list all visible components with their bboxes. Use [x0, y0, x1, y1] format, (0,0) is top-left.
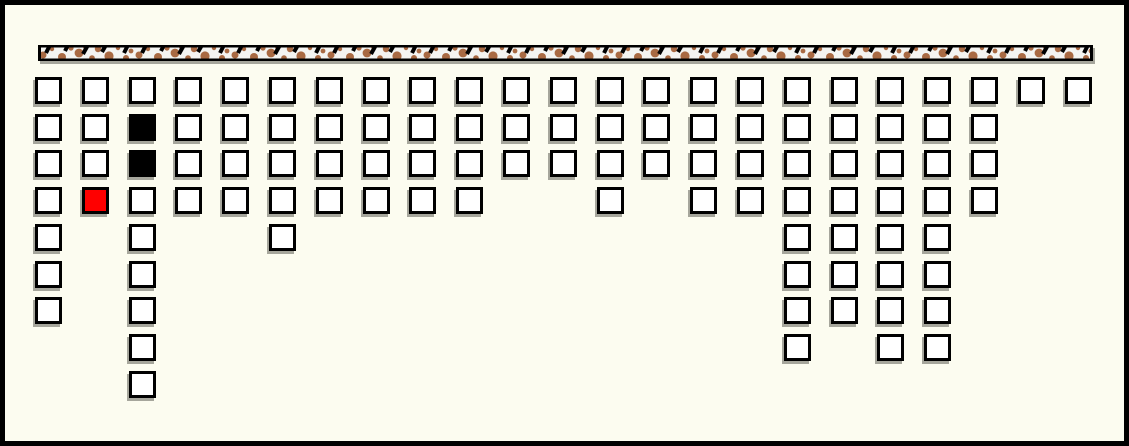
- grid-cell[interactable]: [971, 77, 998, 104]
- black-cell[interactable]: [129, 114, 156, 141]
- grid-cell[interactable]: [129, 334, 156, 361]
- grid-cell[interactable]: [784, 224, 811, 251]
- grid-cell[interactable]: [363, 150, 390, 177]
- grid-cell[interactable]: [737, 114, 764, 141]
- grid-cell[interactable]: [784, 334, 811, 361]
- grid-cell[interactable]: [129, 187, 156, 214]
- grid-cell[interactable]: [550, 77, 577, 104]
- grid-cell[interactable]: [222, 150, 249, 177]
- grid-cell[interactable]: [737, 150, 764, 177]
- grid-cell[interactable]: [971, 150, 998, 177]
- grid-cell[interactable]: [409, 187, 436, 214]
- grid-cell[interactable]: [35, 261, 62, 288]
- grid-cell[interactable]: [690, 114, 717, 141]
- red-cell[interactable]: [82, 187, 109, 214]
- grid-cell[interactable]: [129, 224, 156, 251]
- grid-cell[interactable]: [363, 187, 390, 214]
- grid-cell[interactable]: [831, 224, 858, 251]
- grid-cell[interactable]: [831, 261, 858, 288]
- grid-cell[interactable]: [784, 114, 811, 141]
- grid-cell[interactable]: [175, 187, 202, 214]
- grid-cell[interactable]: [175, 114, 202, 141]
- grid-cell[interactable]: [1018, 77, 1045, 104]
- grid-cell[interactable]: [269, 114, 296, 141]
- grid-cell[interactable]: [456, 187, 483, 214]
- grid-cell[interactable]: [597, 150, 624, 177]
- grid-cell[interactable]: [316, 150, 343, 177]
- grid-cell[interactable]: [409, 77, 436, 104]
- grid-cell[interactable]: [456, 150, 483, 177]
- grid-cell[interactable]: [784, 261, 811, 288]
- grid-cell[interactable]: [82, 114, 109, 141]
- grid-cell[interactable]: [597, 77, 624, 104]
- grid-cell[interactable]: [550, 114, 577, 141]
- grid-cell[interactable]: [971, 187, 998, 214]
- grid-cell[interactable]: [831, 150, 858, 177]
- grid-cell[interactable]: [877, 77, 904, 104]
- grid-cell[interactable]: [129, 77, 156, 104]
- grid-cell[interactable]: [784, 187, 811, 214]
- grid-cell[interactable]: [877, 114, 904, 141]
- grid-cell[interactable]: [831, 187, 858, 214]
- grid-cell[interactable]: [924, 187, 951, 214]
- grid-cell[interactable]: [222, 114, 249, 141]
- grid-cell[interactable]: [269, 187, 296, 214]
- grid-cell[interactable]: [877, 297, 904, 324]
- grid-cell[interactable]: [316, 187, 343, 214]
- grid-cell[interactable]: [222, 77, 249, 104]
- grid-cell[interactable]: [129, 261, 156, 288]
- grid-cell[interactable]: [175, 150, 202, 177]
- grid-cell[interactable]: [35, 187, 62, 214]
- grid-cell[interactable]: [877, 261, 904, 288]
- grid-cell[interactable]: [456, 77, 483, 104]
- grid-cell[interactable]: [316, 114, 343, 141]
- grid-cell[interactable]: [129, 371, 156, 398]
- grid-cell[interactable]: [269, 150, 296, 177]
- grid-cell[interactable]: [737, 77, 764, 104]
- grid-cell[interactable]: [924, 261, 951, 288]
- grid-cell[interactable]: [597, 114, 624, 141]
- grid-cell[interactable]: [877, 150, 904, 177]
- grid-cell[interactable]: [690, 150, 717, 177]
- block-grid: [0, 0, 1129, 446]
- grid-cell[interactable]: [129, 297, 156, 324]
- grid-cell[interactable]: [316, 77, 343, 104]
- grid-cell[interactable]: [35, 150, 62, 177]
- grid-cell[interactable]: [35, 77, 62, 104]
- grid-cell[interactable]: [877, 334, 904, 361]
- grid-cell[interactable]: [690, 187, 717, 214]
- grid-cell[interactable]: [831, 297, 858, 324]
- grid-cell[interactable]: [643, 150, 670, 177]
- grid-cell[interactable]: [924, 114, 951, 141]
- grid-cell[interactable]: [877, 187, 904, 214]
- grid-cell[interactable]: [877, 224, 904, 251]
- grid-cell[interactable]: [971, 114, 998, 141]
- grid-cell[interactable]: [363, 77, 390, 104]
- grid-cell[interactable]: [269, 224, 296, 251]
- grid-cell[interactable]: [784, 77, 811, 104]
- grid-cell[interactable]: [503, 77, 530, 104]
- grid-cell[interactable]: [831, 114, 858, 141]
- grid-cell[interactable]: [175, 77, 202, 104]
- grid-cell[interactable]: [597, 187, 624, 214]
- grid-cell[interactable]: [35, 224, 62, 251]
- grid-cell[interactable]: [924, 150, 951, 177]
- grid-cell[interactable]: [409, 150, 436, 177]
- grid-cell[interactable]: [82, 77, 109, 104]
- grid-cell[interactable]: [924, 297, 951, 324]
- grid-cell[interactable]: [35, 114, 62, 141]
- grid-cell[interactable]: [269, 77, 296, 104]
- grid-cell[interactable]: [35, 297, 62, 324]
- black-cell[interactable]: [129, 150, 156, 177]
- grid-cell[interactable]: [831, 77, 858, 104]
- grid-cell[interactable]: [924, 334, 951, 361]
- grid-cell[interactable]: [222, 187, 249, 214]
- grid-cell[interactable]: [643, 114, 670, 141]
- grid-cell[interactable]: [643, 77, 670, 104]
- grid-cell[interactable]: [82, 150, 109, 177]
- grid-cell[interactable]: [784, 150, 811, 177]
- grid-cell[interactable]: [503, 114, 530, 141]
- grid-cell[interactable]: [503, 150, 530, 177]
- grid-cell[interactable]: [737, 187, 764, 214]
- grid-cell[interactable]: [363, 114, 390, 141]
- game-world: [0, 0, 1129, 446]
- grid-cell[interactable]: [784, 297, 811, 324]
- grid-cell[interactable]: [1065, 77, 1092, 104]
- grid-cell[interactable]: [924, 224, 951, 251]
- grid-cell[interactable]: [409, 114, 436, 141]
- grid-cell[interactable]: [456, 114, 483, 141]
- grid-cell[interactable]: [690, 77, 717, 104]
- grid-cell[interactable]: [550, 150, 577, 177]
- grid-cell[interactable]: [924, 77, 951, 104]
